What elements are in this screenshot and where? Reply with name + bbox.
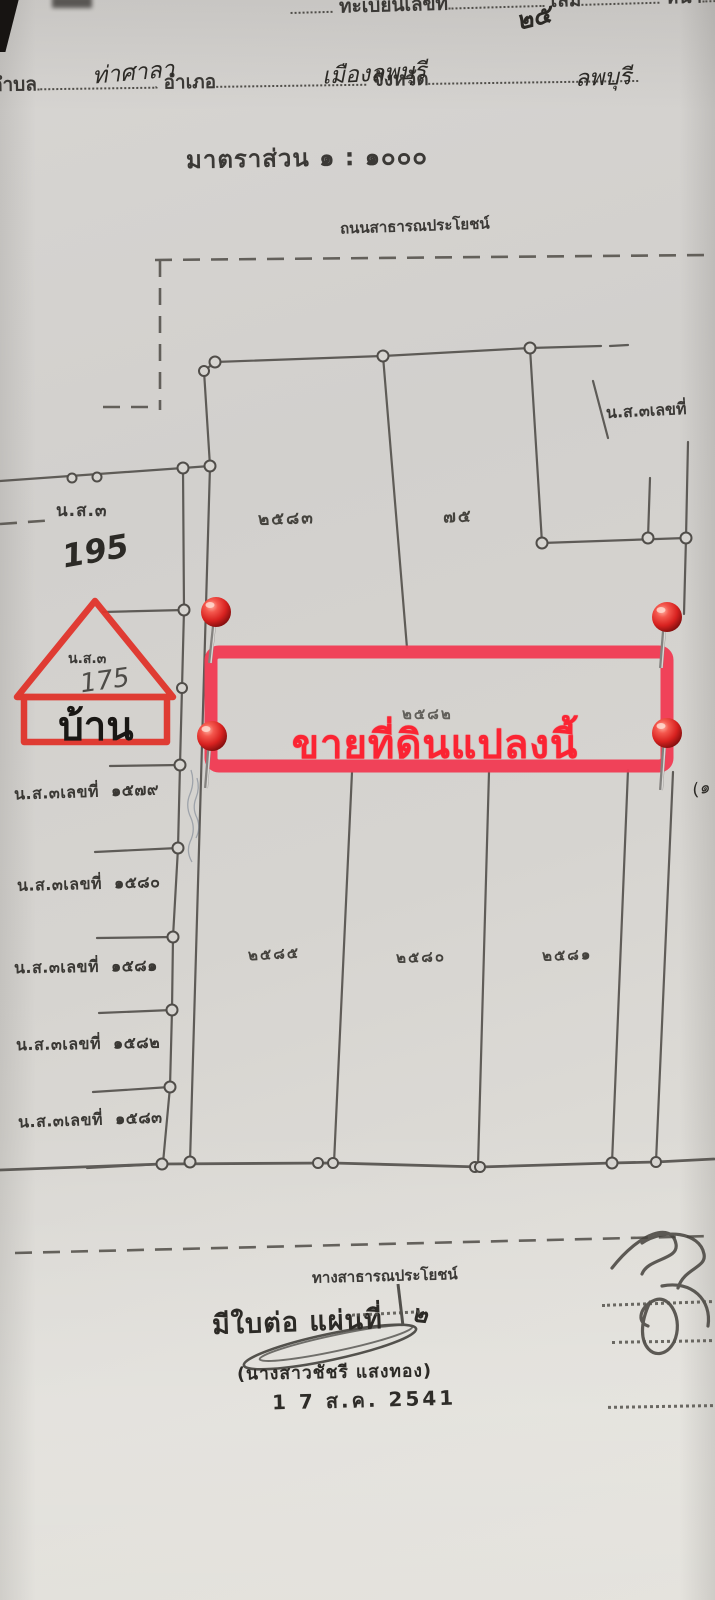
left-parcel-item: น.ส.๓เลขที่๑๕๗๙ <box>14 777 160 807</box>
bottom-road-dashed-line <box>15 1236 712 1253</box>
left-parcel-number: ๑๕๘๓ <box>115 1107 163 1128</box>
left-parcel-item: น.ส.๓เลขที่๑๕๘๑ <box>14 954 158 982</box>
parcel-number-bottom-left: ๒๕๘๕ <box>247 941 300 968</box>
left-parcel-label: น.ส.๓เลขที่ <box>18 1110 104 1132</box>
ns3-label-top-right: น.ส.๓เลขที่ <box>605 397 687 426</box>
left-parcel-item: น.ส.๓เลขที่๑๕๘๐ <box>17 870 161 899</box>
continuation-stamp: มีใบต่อ แผ่นที่ <box>211 1297 383 1346</box>
parcel-number-upper-right: ๗๕ <box>443 502 474 530</box>
left-parcel-item: น.ส.๓เลขที่๑๕๘๓ <box>18 1105 163 1135</box>
bottom-road-label: ทางสาธารณประโยชน์ <box>312 1262 458 1290</box>
left-parcel-number: ๑๕๘๑ <box>111 956 158 976</box>
left-parcel-label: น.ส.๓เลขที่ <box>14 782 100 804</box>
left-parcel-number: ๑๕๘๐ <box>114 872 161 892</box>
date-stamp: 1 7 ส.ค. 2541 <box>272 1382 457 1419</box>
left-parcel-label: น.ส.๓เลขที่ <box>17 874 103 895</box>
left-parcel-label: น.ส.๓เลขที่ <box>14 957 99 977</box>
parcel-number-bottom-middle: ๒๕๘๐ <box>396 944 447 970</box>
left-parcel-number: ๑๕๗๙ <box>111 779 160 800</box>
sale-overlay-text: ขายที่ดินแปลงนี้ <box>235 712 635 776</box>
signature-scrawl <box>612 1232 709 1353</box>
scanned-land-survey-document: ทะเบียนเลขที่ เล่ม หน้า ๒๕ ตำบล อำเภอ จั… <box>0 0 715 1600</box>
faint-handwritten-annotation <box>188 770 199 862</box>
left-parcel-number: ๑๕๘๒ <box>113 1033 160 1053</box>
top-road-dashed-line <box>155 255 712 260</box>
left-parcel-item: น.ส.๓เลขที่๑๕๘๒ <box>16 1031 161 1059</box>
left-road-dashed-fragment <box>0 520 55 524</box>
continuation-label: มีใบต่อ แผ่นที่ <box>212 1304 384 1341</box>
parcel-number-upper-left: ๒๕๘๓ <box>258 504 316 533</box>
ns3-label-upper-left: น.ส.๓ <box>56 497 108 524</box>
house-name-text: บ้าน <box>30 694 162 758</box>
left-parcel-label: น.ส.๓เลขที่ <box>16 1034 101 1054</box>
parcel-number-bottom-right: ๒๕๘๑ <box>542 942 593 968</box>
